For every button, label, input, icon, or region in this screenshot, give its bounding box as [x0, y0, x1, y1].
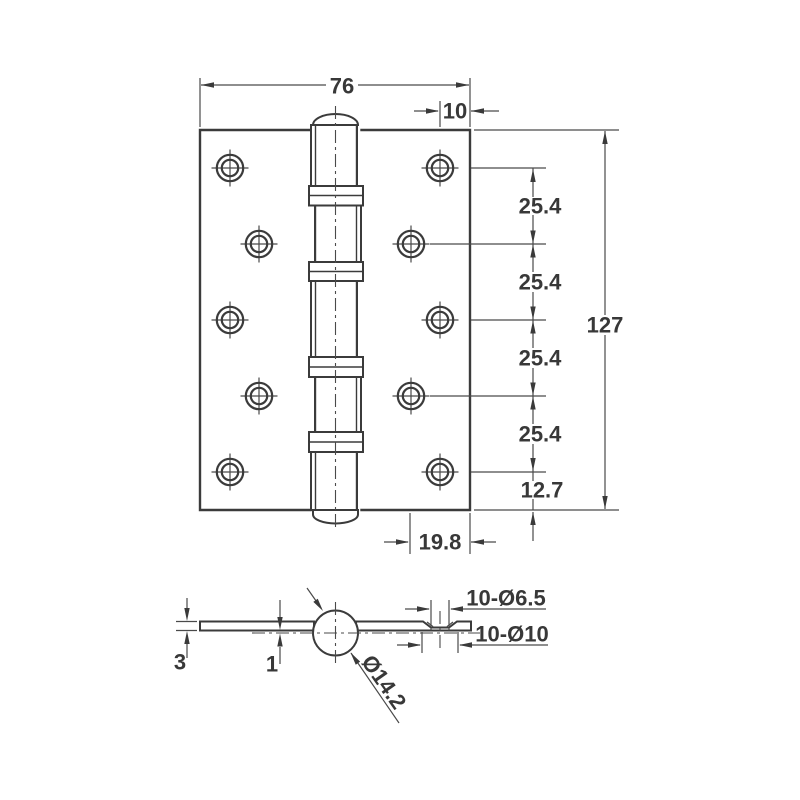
screw-hole: [422, 454, 459, 491]
screw-hole: [393, 226, 430, 263]
dim-label-pitch-3: 25.4: [519, 346, 563, 371]
screw-hole: [212, 454, 249, 491]
screw-hole: [422, 150, 459, 187]
dim-label-center-offset: 1: [266, 652, 278, 677]
screw-hole: [241, 226, 278, 263]
screw-hole: [212, 150, 249, 187]
dim-label-screw-holes: 10-Ø6.5: [466, 586, 546, 611]
dim-label-edge-offset: 10: [443, 99, 467, 124]
dim-label-pitch-1: 25.4: [519, 194, 563, 219]
drawing-canvas: 76 10 25.4 25.4 25.4 25.4 12.7: [0, 0, 800, 800]
screw-hole: [241, 378, 278, 415]
dim-inner-offset-19-8: 19.8: [384, 513, 496, 555]
dim-hole-pitch-chain: 25.4 25.4 25.4 25.4 12.7: [519, 168, 564, 541]
screw-hole: [422, 302, 459, 339]
dim-knuckle-diameter: Ø14.2: [307, 588, 411, 723]
dim-label-knuckle-diameter: Ø14.2: [357, 650, 412, 713]
section-view: 3 1 Ø14.2 10-Ø6.5 10-Ø10: [174, 586, 549, 724]
screw-hole: [212, 302, 249, 339]
dim-label-thickness: 3: [174, 650, 186, 675]
dim-label-bottom-offset: 12.7: [521, 478, 564, 503]
dim-label-countersinks: 10-Ø10: [475, 622, 548, 647]
front-view: 76 10 25.4 25.4 25.4 25.4 12.7: [200, 74, 623, 555]
dim-center-offset-1: 1: [266, 600, 283, 677]
dim-thickness-3: 3: [174, 598, 197, 675]
hinge-barrel: [309, 114, 363, 524]
dim-label-inner-offset: 19.8: [419, 530, 462, 555]
dim-screw-hole-diameter: 10-Ø6.5: [405, 586, 546, 627]
screw-hole: [393, 378, 430, 415]
dim-label-width: 76: [330, 74, 354, 99]
dim-label-height: 127: [587, 313, 624, 338]
dim-label-pitch-4: 25.4: [519, 422, 563, 447]
dim-label-pitch-2: 25.4: [519, 270, 563, 295]
right-leaf-section: [356, 622, 471, 631]
dim-edge-offset-10: 10: [414, 99, 499, 128]
left-leaf-section: [200, 622, 314, 631]
hinge-technical-drawing: 76 10 25.4 25.4 25.4 25.4 12.7: [0, 0, 800, 800]
